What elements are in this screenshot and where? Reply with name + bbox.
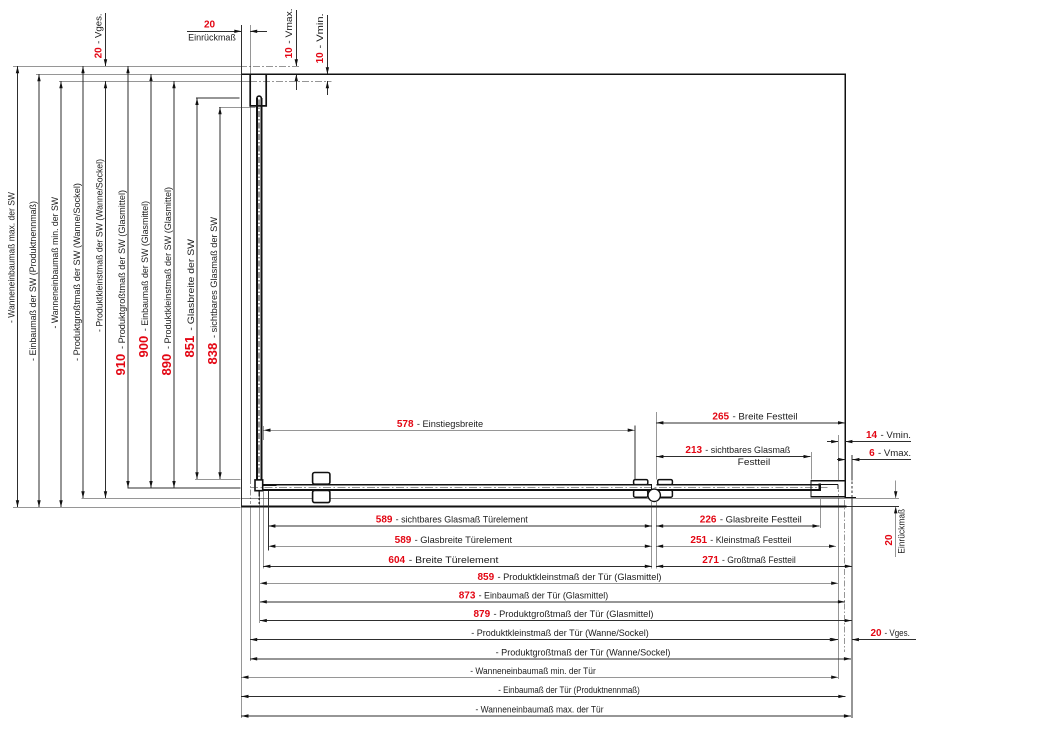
svg-text:20: 20 [204, 19, 216, 30]
svg-text:Einrückmaß: Einrückmaß [897, 508, 907, 553]
svg-text:- Produktgroßtmaß der SW (Wann: - Produktgroßtmaß der SW (Wanne/Sockel) [72, 183, 82, 361]
svg-text:20: 20 [93, 47, 104, 59]
svg-text:- Produktgroßtmaß der Tür (Wan: - Produktgroßtmaß der Tür (Wanne/Sockel) [496, 647, 671, 657]
svg-text:- Wanneneinbaumaß max. der SW: - Wanneneinbaumaß max. der SW [6, 192, 16, 323]
svg-text:910: 910 [113, 354, 128, 376]
svg-text:- Wanneneinbaumaß min. der Tür: - Wanneneinbaumaß min. der Tür [470, 666, 596, 676]
svg-text:- Produktkleinstmaß der Tür (W: - Produktkleinstmaß der Tür (Wanne/Socke… [471, 628, 649, 638]
svg-text:265: 265 [712, 411, 729, 422]
svg-text:873: 873 [459, 590, 476, 601]
svg-text:- Breite Türelement: - Breite Türelement [406, 555, 499, 565]
svg-text:14: 14 [866, 430, 878, 441]
svg-text:- Vges.: - Vges. [882, 628, 910, 638]
svg-text:- Vmin.: - Vmin. [315, 13, 325, 51]
svg-text:Festteil: Festteil [738, 457, 771, 467]
svg-text:226: 226 [700, 515, 717, 526]
svg-text:6: 6 [869, 448, 875, 459]
svg-text:- Einstiegsbreite: - Einstiegsbreite [414, 419, 483, 429]
svg-text:251: 251 [690, 535, 707, 546]
svg-text:- Einbaumaß der Tür (Produktne: - Einbaumaß der Tür (Produktnennmaß) [498, 685, 640, 695]
svg-text:- Großtmaß Festteil: - Großtmaß Festteil [720, 555, 796, 565]
svg-text:- Wanneneinbaumaß max. der Tür: - Wanneneinbaumaß max. der Tür [475, 705, 603, 715]
svg-text:589: 589 [395, 535, 412, 546]
svg-text:- Produktgroßtmaß der SW (Glas: - Produktgroßtmaß der SW (Glasmittel) [117, 190, 127, 352]
svg-text:- Produktkleinstmaß der Tür (G: - Produktkleinstmaß der Tür (Glasmittel) [495, 572, 662, 582]
svg-text:Einrückmaß: Einrückmaß [188, 33, 236, 43]
svg-text:578: 578 [397, 419, 414, 430]
svg-text:- Einbaumaß der SW (Glasmittel: - Einbaumaß der SW (Glasmittel) [140, 201, 150, 334]
svg-text:879: 879 [474, 609, 491, 620]
svg-text:271: 271 [702, 555, 719, 566]
svg-text:- Einbaumaß der SW (Produktnen: - Einbaumaß der SW (Produktnennmaß) [28, 201, 38, 361]
svg-text:890: 890 [159, 354, 174, 376]
svg-text:- Vmin.: - Vmin. [878, 430, 911, 440]
svg-text:604: 604 [388, 555, 405, 566]
svg-text:- sichtbares Glasmaß Türelemen: - sichtbares Glasmaß Türelement [393, 515, 528, 525]
svg-text:- Glasbreite der SW: - Glasbreite der SW [186, 238, 196, 333]
svg-text:10: 10 [284, 47, 295, 59]
svg-text:838: 838 [205, 343, 220, 365]
svg-text:- Breite Festteil: - Breite Festteil [730, 411, 798, 421]
svg-text:- Vges.: - Vges. [93, 13, 103, 46]
svg-text:- Produktkleinstmaß der SW (Gl: - Produktkleinstmaß der SW (Glasmittel) [163, 187, 173, 352]
svg-text:- sichtbares Glasmaß: - sichtbares Glasmaß [703, 445, 791, 455]
svg-text:10: 10 [315, 52, 326, 64]
svg-text:- Glasbreite Türelement: - Glasbreite Türelement [412, 535, 513, 545]
svg-text:900: 900 [136, 336, 151, 358]
svg-text:- Vmax.: - Vmax. [284, 8, 294, 46]
svg-text:20: 20 [871, 628, 883, 639]
svg-text:- Glasbreite Festteil: - Glasbreite Festteil [717, 515, 802, 525]
svg-text:589: 589 [376, 515, 393, 526]
svg-text:213: 213 [685, 445, 702, 456]
svg-text:- Produktgroßtmaß der Tür (Gla: - Produktgroßtmaß der Tür (Glasmittel) [491, 609, 654, 619]
svg-text:- Kleinstmaß Festteil: - Kleinstmaß Festteil [708, 535, 792, 545]
svg-text:- Wanneneinbaumaß min. der SW: - Wanneneinbaumaß min. der SW [50, 197, 60, 329]
svg-text:- Produktkleinstmaß der SW (Wa: - Produktkleinstmaß der SW (Wanne/Sockel… [94, 159, 104, 332]
svg-text:851: 851 [182, 336, 197, 358]
svg-text:- Vmax.: - Vmax. [875, 448, 911, 458]
svg-text:859: 859 [478, 572, 495, 583]
svg-text:- sichtbares Glasmaß der SW: - sichtbares Glasmaß der SW [209, 216, 219, 340]
svg-text:- Einbaumaß der Tür (Glasmitte: - Einbaumaß der Tür (Glasmittel) [476, 590, 608, 600]
svg-text:20: 20 [884, 534, 895, 546]
